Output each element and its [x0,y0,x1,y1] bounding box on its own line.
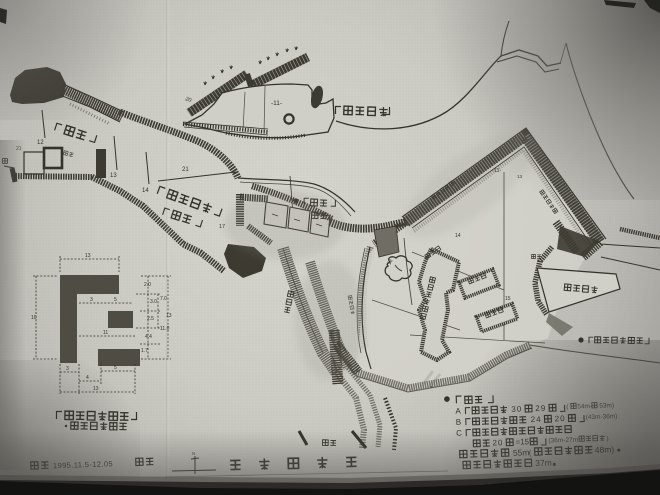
svg-text:10: 10 [31,315,37,321]
svg-text:3.0: 3.0 [150,299,157,305]
svg-text:2.5: 2.5 [147,316,154,322]
svg-text:17: 17 [219,224,225,230]
svg-text:14: 14 [455,233,461,239]
svg-text:-11-: -11- [271,100,282,107]
svg-text:1.7: 1.7 [141,348,148,354]
svg-text:13: 13 [85,253,91,259]
svg-text:14: 14 [142,188,149,194]
svg-text:3: 3 [90,297,93,303]
svg-text:2.0: 2.0 [144,282,151,288]
svg-text:12: 12 [37,140,44,146]
svg-text:21: 21 [182,167,189,173]
svg-text:4.4: 4.4 [145,334,152,340]
svg-text:11: 11 [103,330,108,336]
svg-text:5: 5 [114,297,117,303]
svg-text:13: 13 [110,173,117,179]
svg-text:15: 15 [505,296,511,302]
